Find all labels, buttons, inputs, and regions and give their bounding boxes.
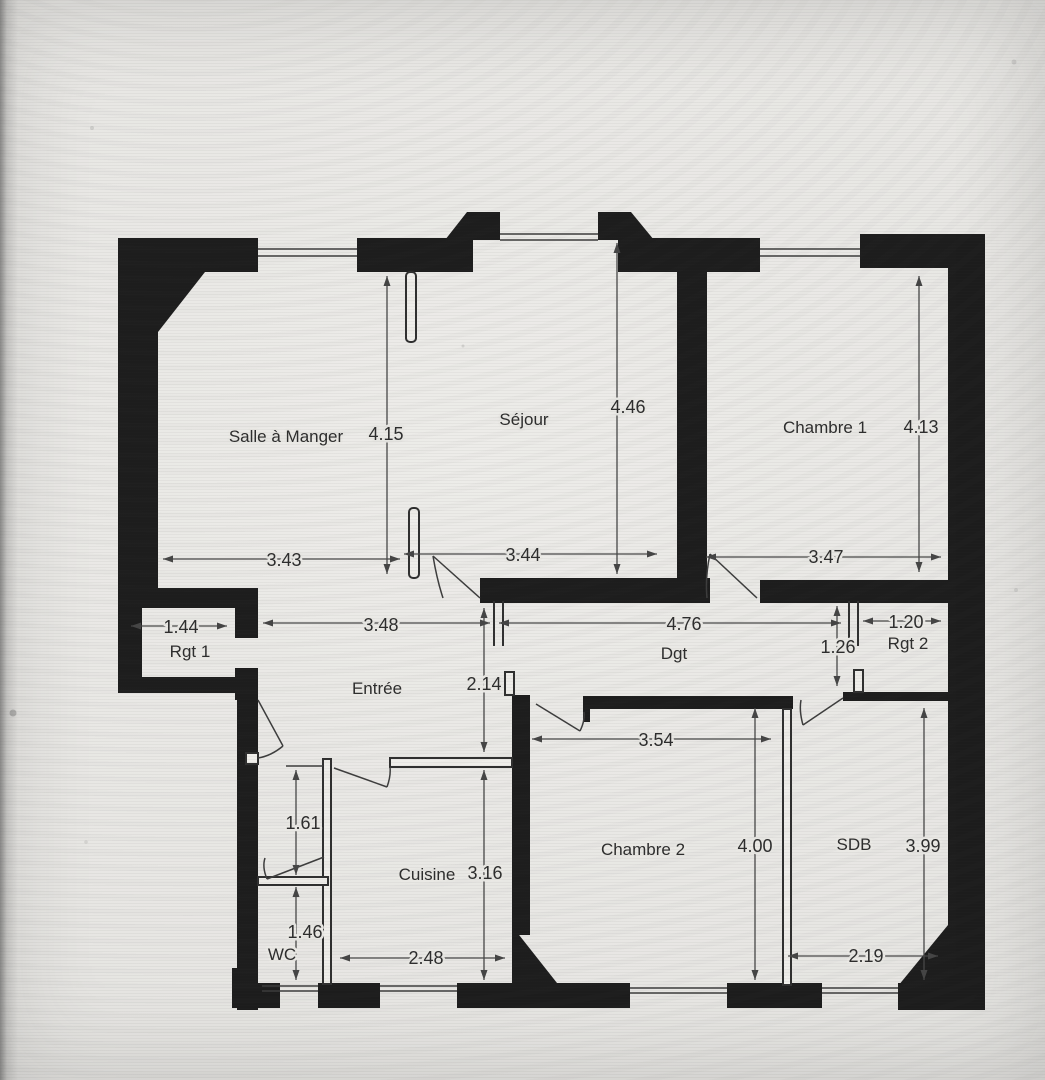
speck — [462, 345, 465, 348]
room-label-entree: Entrée — [352, 679, 402, 698]
room-label-cuisine: Cuisine — [399, 865, 456, 884]
partition-wc-cuisine — [323, 759, 331, 984]
floor-plan-svg: 3.43 3.44 3.47 4.15 4.46 4.13 1.44 3.48 … — [0, 0, 1045, 1080]
dim-cuisine-width: 2.48 — [408, 948, 443, 968]
door-jamb-icon — [505, 672, 514, 695]
partitions — [246, 272, 863, 985]
wall-segment — [118, 677, 237, 693]
partition-cuisine-top — [390, 758, 512, 767]
dim-chambre-2-width: 3.54 — [638, 730, 673, 750]
room-label-sejour: Séjour — [499, 410, 548, 429]
dim-salle-a-manger-width: 3.43 — [266, 550, 301, 570]
speck — [1012, 60, 1017, 65]
dim-chambre-1-width: 3.47 — [808, 547, 843, 567]
dim-sejour-width: 3.44 — [505, 545, 540, 565]
room-label-salle-a-manger: Salle à Manger — [229, 427, 344, 446]
wall-segment — [948, 234, 985, 1010]
wall-segment — [727, 983, 822, 1008]
dim-rgt-2-width: 1.20 — [888, 612, 923, 632]
door-wc — [264, 857, 324, 879]
radiator-icon — [409, 508, 419, 578]
floor-plan-photo: 3.43 3.44 3.47 4.15 4.46 4.13 1.44 3.48 … — [0, 0, 1045, 1080]
wall-footing — [232, 968, 280, 1008]
wall-stub — [235, 668, 258, 700]
dim-degagement-width: 4.76 — [666, 614, 701, 634]
radiator-icon — [406, 272, 416, 342]
room-label-rgt-2: Rgt 2 — [888, 634, 929, 653]
room-label-sdb: SDB — [837, 835, 872, 854]
dim-chambre-1-height: 4.13 — [903, 417, 938, 437]
window-salle-a-manger — [258, 249, 357, 256]
room-label-dgt: Dgt — [661, 644, 688, 663]
window-sdb — [822, 988, 898, 993]
window-sejour — [500, 234, 598, 240]
door-entree — [258, 700, 283, 758]
wall-segment — [237, 668, 258, 1010]
room-label-chambre-1: Chambre 1 — [783, 418, 867, 437]
room-label-wc: WC — [268, 945, 296, 964]
speck — [10, 710, 17, 717]
window-cuisine — [380, 986, 457, 991]
wall-corner-chamfer — [158, 272, 205, 332]
wall-segment — [898, 983, 985, 1010]
door-chambre-2 — [536, 704, 584, 731]
wall-segment — [118, 588, 258, 608]
dim-chambre-2-height: 4.00 — [737, 836, 772, 856]
door-sejour — [433, 556, 480, 598]
room-label-rgt-1: Rgt 1 — [170, 642, 211, 661]
window-chambre-1 — [760, 249, 860, 256]
dim-entree-hall-width: 3.48 — [363, 615, 398, 635]
speck — [84, 840, 88, 844]
wall-segment — [588, 696, 793, 709]
window-chambre-2 — [630, 988, 727, 993]
door-jamb-icon — [854, 670, 863, 692]
speck — [90, 126, 94, 130]
door-stop-notch — [246, 753, 258, 764]
dim-cuisine-height: 3.16 — [467, 863, 502, 883]
chimney-left — [445, 212, 500, 240]
dim-wc-lower-height: 1.46 — [287, 922, 322, 942]
windows — [258, 234, 898, 993]
wall-segment — [457, 983, 630, 1008]
dim-rgt-1-width: 1.44 — [163, 617, 198, 637]
wall-segment — [480, 578, 710, 603]
dim-rgt-2-height: 1.26 — [820, 637, 855, 657]
wall-segment — [318, 983, 380, 1008]
door-sdb — [800, 698, 843, 725]
door-chambre-1 — [706, 554, 757, 598]
wall-stub — [235, 608, 258, 638]
dim-entree-length: 2.14 — [466, 674, 501, 694]
speck — [1014, 588, 1018, 592]
dim-sdb-width: 2.19 — [848, 946, 883, 966]
dim-sdb-height: 3.99 — [905, 836, 940, 856]
wall-segment — [677, 272, 707, 578]
dim-wc-upper-height: 1.61 — [285, 813, 320, 833]
wall-segment — [512, 695, 530, 935]
wall-segment — [843, 692, 948, 701]
chimney-right — [598, 212, 654, 240]
wall-segment — [357, 238, 473, 272]
partition-chambre2-sdb — [783, 709, 791, 985]
room-label-chambre-2: Chambre 2 — [601, 840, 685, 859]
wall-segment — [760, 580, 948, 603]
door-cuisine — [334, 767, 390, 787]
dim-sejour-height: 4.46 — [610, 397, 645, 417]
wall-segment — [618, 238, 760, 272]
wall-segment — [118, 238, 158, 603]
dim-salle-a-manger-height: 4.15 — [368, 424, 403, 444]
